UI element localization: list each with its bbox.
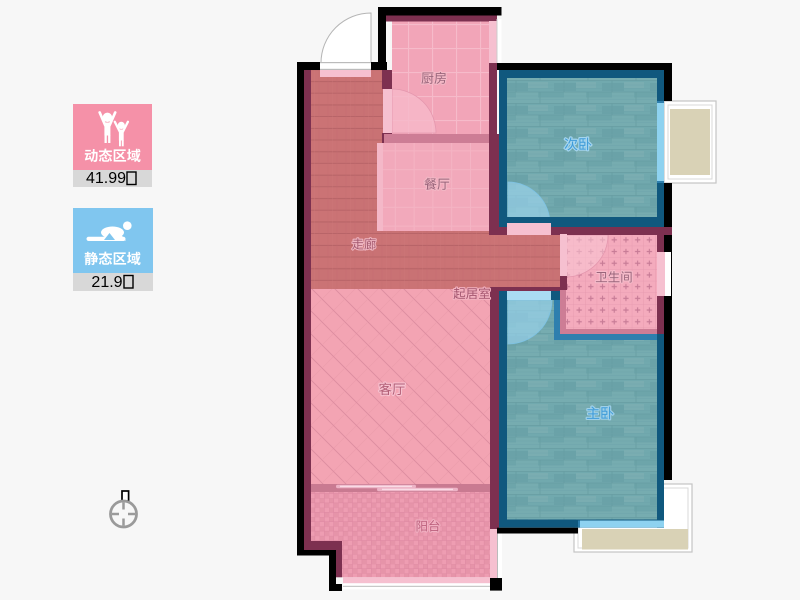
svg-text:21.9: 21.9	[91, 274, 122, 291]
svg-text:41.99: 41.99	[86, 170, 126, 187]
